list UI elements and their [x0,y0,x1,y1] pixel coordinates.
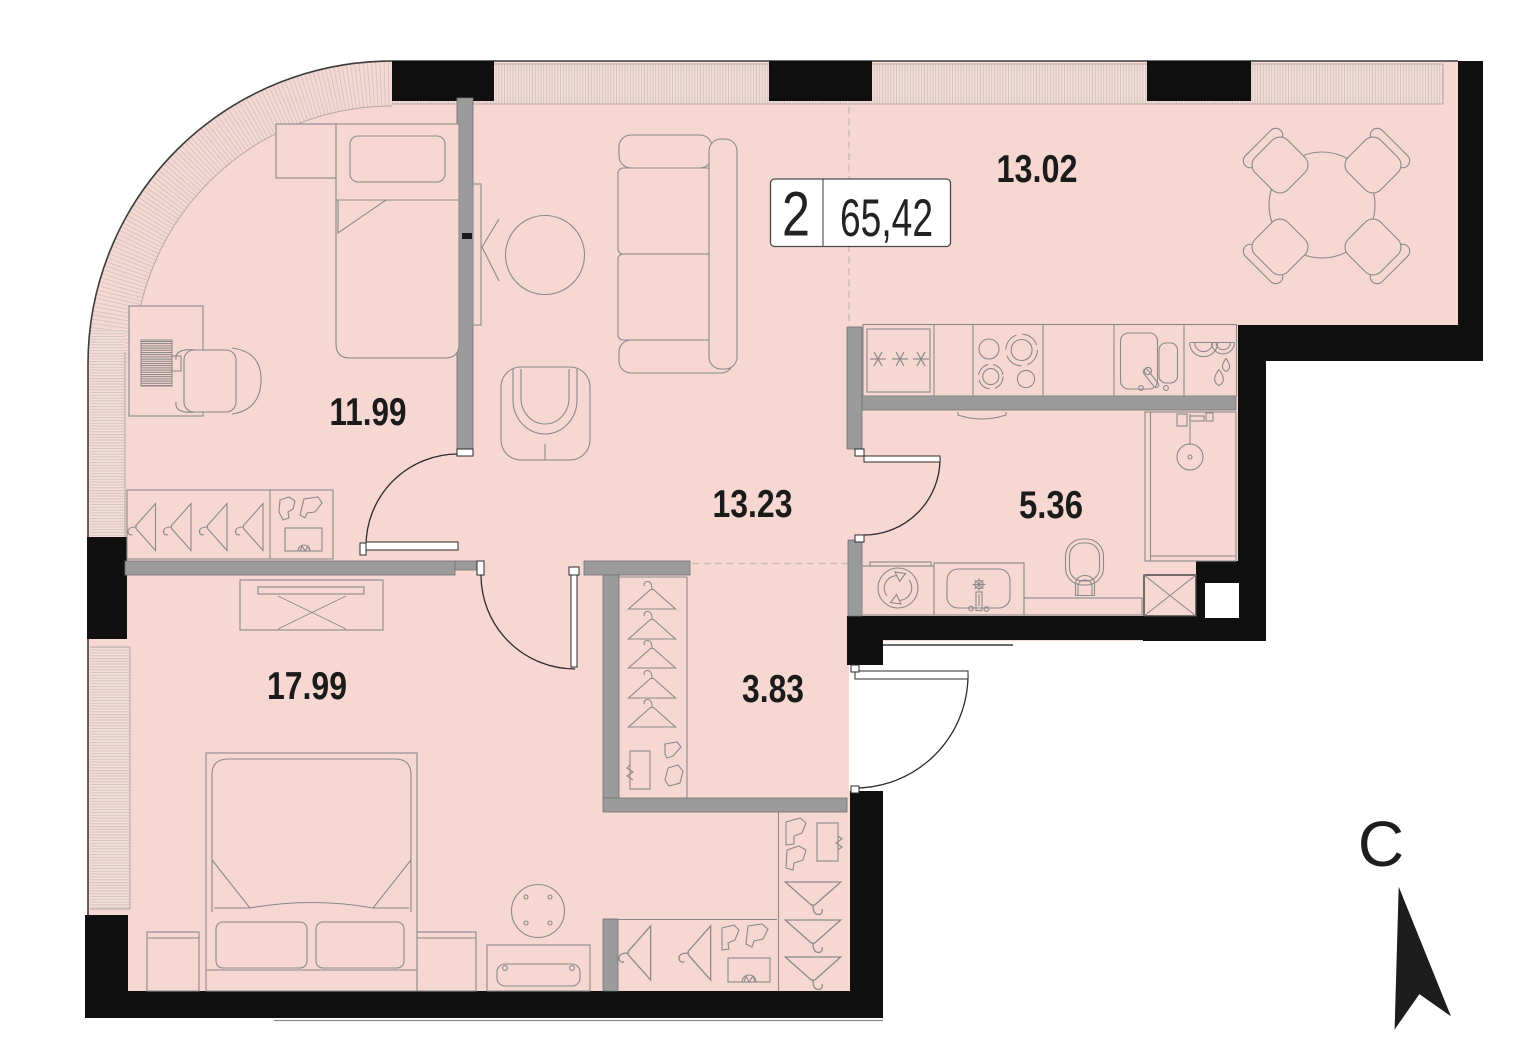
svg-text:13.23: 13.23 [713,483,793,526]
svg-text:3.83: 3.83 [742,668,804,711]
svg-text:17.99: 17.99 [267,665,347,708]
svg-text:5.36: 5.36 [1019,484,1083,527]
svg-text:2: 2 [782,180,810,250]
svg-text:13.02: 13.02 [997,148,1078,191]
svg-text:C: C [1358,808,1404,880]
svg-text:65,42: 65,42 [840,189,933,248]
svg-text:11.99: 11.99 [330,391,407,434]
